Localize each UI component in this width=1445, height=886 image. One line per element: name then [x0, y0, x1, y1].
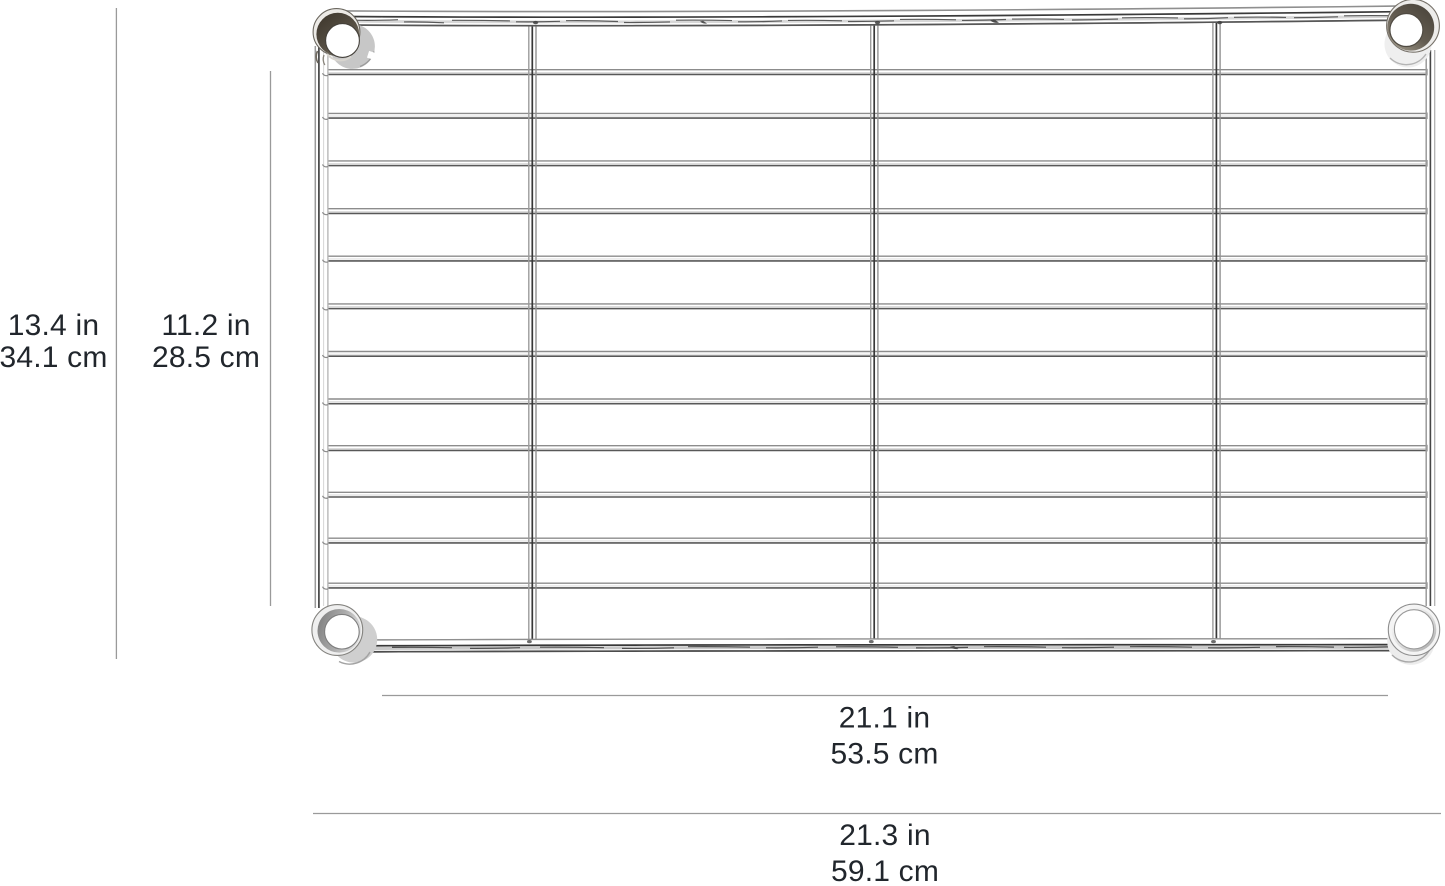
svg-text:21.1 in: 21.1 in [839, 702, 930, 735]
svg-text:11.2 in: 11.2 in [161, 309, 250, 342]
svg-text:59.1 cm: 59.1 cm [831, 855, 939, 886]
svg-text:21.3 in: 21.3 in [839, 819, 930, 852]
svg-text:13.4 in: 13.4 in [8, 309, 99, 342]
svg-text:34.1 cm: 34.1 cm [0, 341, 108, 374]
svg-text:53.5 cm: 53.5 cm [830, 738, 938, 771]
svg-text:28.5 cm: 28.5 cm [152, 341, 260, 374]
